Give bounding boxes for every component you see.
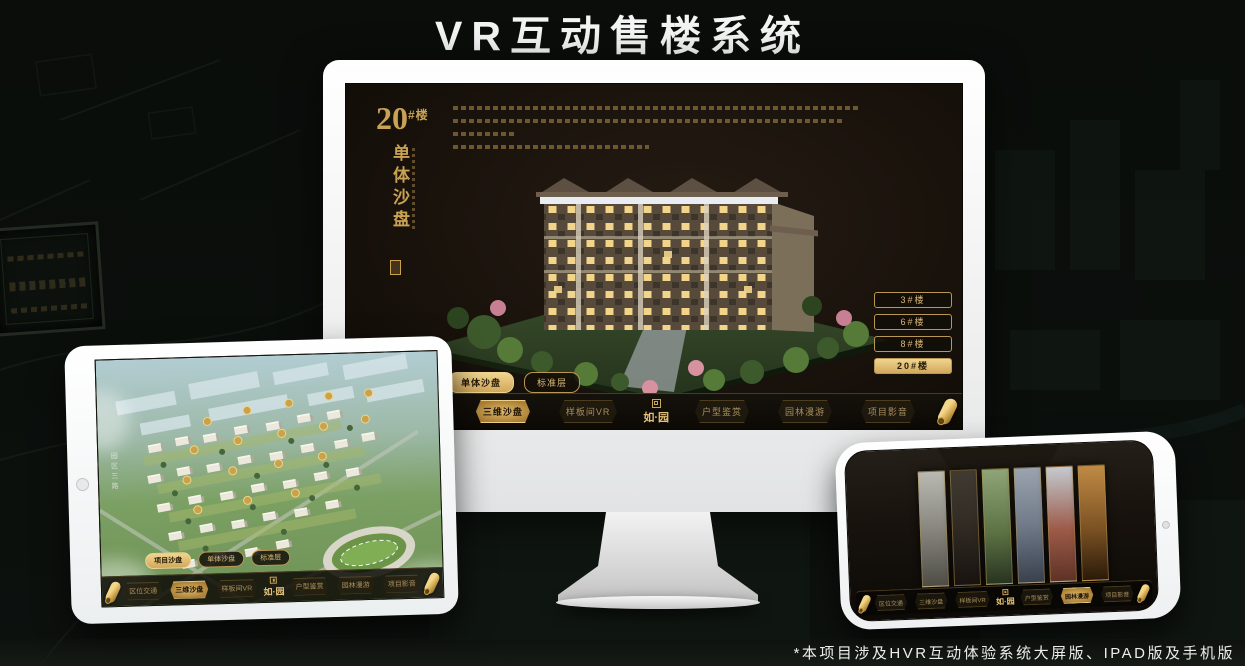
building-number-suffix: #楼 [408, 108, 429, 122]
nav-item-3d-sandbox[interactable]: 三维沙盘 [473, 400, 533, 423]
floor-button-20[interactable]: 20#楼 [874, 358, 952, 374]
gallery-panel[interactable] [1078, 464, 1109, 581]
gallery-panel[interactable] [1046, 465, 1077, 582]
section-title-vertical: 单体沙盘 [387, 144, 412, 232]
tablet-screen: 园区三路 项目沙盘 单体沙盘 标准层 区位交通 三维沙盘 样板间VR 如·园 户… [95, 350, 445, 607]
phone-screen: 区位交通 三维沙盘 样板间VR 如·园 户型鉴赏 园林漫游 项目影音 [844, 439, 1159, 622]
ipad-device: 园区三路 项目沙盘 单体沙盘 标准层 区位交通 三维沙盘 样板间VR 如·园 户… [64, 336, 459, 625]
phone-device: 区位交通 三维沙盘 样板间VR 如·园 户型鉴赏 园林漫游 项目影音 [835, 431, 1182, 631]
nav-item-showroom-vr[interactable]: 样板间VR [953, 591, 992, 608]
nav-item-project-media[interactable]: 项目影音 [858, 400, 918, 423]
nav-item-garden-roam[interactable]: 园林漫游 [1059, 587, 1096, 604]
floor-button-group: 3#楼 6#楼 8#楼 20#楼 [874, 292, 952, 380]
nav-item-garden-roam[interactable]: 园林漫游 [334, 575, 376, 594]
tab-project-sandbox[interactable]: 项目沙盘 [145, 552, 191, 569]
gallery-panel[interactable] [1014, 467, 1045, 584]
nav-item-showroom-vr[interactable]: 样板间VR [556, 400, 621, 423]
building-3d-render[interactable] [414, 136, 900, 402]
tab-standard-floor[interactable]: 标准层 [524, 372, 580, 393]
scroll-right-icon[interactable] [936, 397, 960, 427]
floor-button-6[interactable]: 6#楼 [874, 314, 952, 330]
nav-item-location[interactable]: 区位交通 [873, 594, 910, 611]
nav-item-location[interactable]: 区位交通 [122, 581, 164, 600]
gallery-panel[interactable] [950, 469, 981, 586]
nav-item-unit-plans[interactable]: 户型鉴赏 [1018, 588, 1055, 605]
monitor-base [556, 596, 760, 609]
scroll-left-icon[interactable] [104, 580, 122, 604]
nav-item-3d-sandbox[interactable]: 三维沙盘 [168, 580, 210, 599]
floor-button-3[interactable]: 3#楼 [874, 292, 952, 308]
gallery-panel[interactable] [982, 468, 1013, 585]
scroll-left-icon[interactable] [857, 594, 872, 614]
scroll-right-icon[interactable] [423, 571, 441, 595]
nav-item-project-media[interactable]: 项目影音 [381, 574, 423, 593]
nav-item-garden-roam[interactable]: 园林漫游 [775, 400, 835, 423]
floor-button-8[interactable]: 8#楼 [874, 336, 952, 352]
nav-item-unit-plans[interactable]: 户型鉴赏 [692, 400, 752, 423]
camera-icon [1162, 520, 1170, 528]
tab-single-sandbox[interactable]: 单体沙盘 [448, 372, 514, 393]
ruyuan-logo-icon [652, 399, 661, 408]
scene-gallery [918, 464, 1109, 587]
ruyuan-logo-icon [270, 577, 277, 584]
home-button[interactable] [76, 478, 89, 491]
building-number: 20 [376, 100, 408, 136]
scroll-right-icon[interactable] [1136, 583, 1151, 603]
ruyuan-logo-icon [1002, 589, 1008, 595]
gallery-panel[interactable] [918, 470, 949, 587]
ruyuan-logo: 如·园 [643, 399, 669, 425]
nav-item-showroom-vr[interactable]: 样板间VR [214, 579, 259, 598]
footnote-text: *本项目涉及HVR互动体验系统大屏版、IPAD版及手机版 [794, 642, 1235, 663]
nav-item-unit-plans[interactable]: 户型鉴赏 [288, 577, 330, 596]
seal-icon [390, 260, 401, 275]
ruyuan-logo: 如·园 [263, 576, 285, 598]
page-title: VR互动售楼系统 [0, 2, 1245, 62]
tab-single-sandbox[interactable]: 单体沙盘 [198, 551, 244, 568]
phone-nav-bar: 区位交通 三维沙盘 样板间VR 如·园 户型鉴赏 园林漫游 项目影音 [855, 580, 1153, 616]
ruyuan-logo: 如·园 [996, 589, 1015, 608]
building-heading: 20#楼 [376, 100, 429, 137]
promo-stage: VR互动售楼系统 20#楼 单体沙盘 [0, 0, 1245, 666]
nav-item-3d-sandbox[interactable]: 三维沙盘 [913, 592, 950, 609]
background-plaque [0, 221, 106, 336]
nav-item-project-media[interactable]: 项目影音 [1099, 585, 1136, 602]
tab-standard-floor[interactable]: 标准层 [251, 549, 290, 566]
road-label: 园区三路 [108, 452, 119, 492]
